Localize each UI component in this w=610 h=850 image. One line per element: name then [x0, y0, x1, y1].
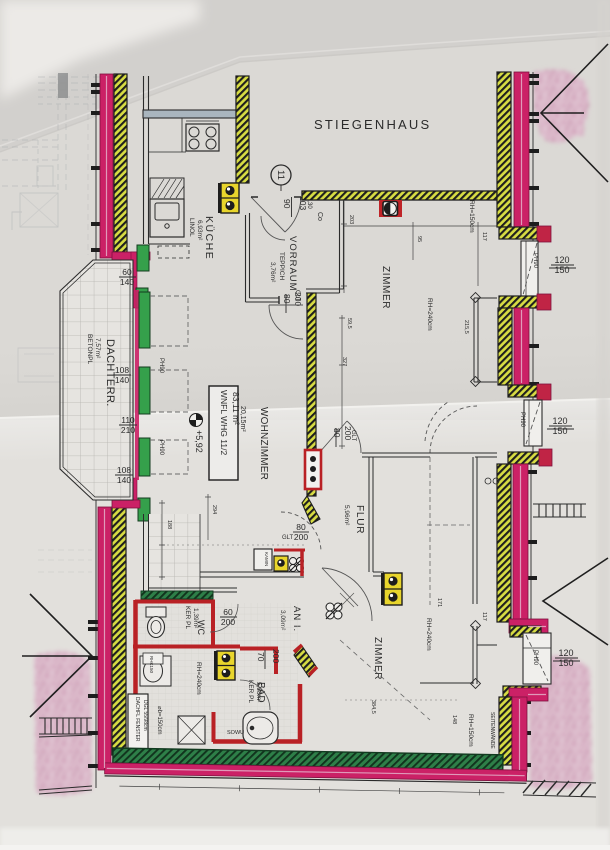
svg-text:60: 60	[122, 267, 132, 277]
svg-text:PH90: PH90	[158, 358, 164, 374]
svg-text:171: 171	[436, 598, 442, 607]
svg-text:117: 117	[481, 232, 487, 241]
svg-text:210: 210	[121, 425, 135, 435]
svg-text:3,76m²: 3,76m²	[269, 262, 276, 283]
svg-text:117: 117	[481, 612, 487, 621]
svg-text:ZIMMER: ZIMMER	[380, 266, 391, 309]
svg-text:BETONPL: BETONPL	[86, 334, 93, 365]
svg-text:STIEGENHAUS: STIEGENHAUS	[314, 117, 431, 132]
svg-text:KÜCHE: KÜCHE	[203, 216, 215, 260]
svg-text:ZIMMER: ZIMMER	[372, 637, 383, 680]
svg-text:RH=150cm: RH=150cm	[468, 200, 475, 233]
svg-text:20,15m²: 20,15m²	[239, 406, 246, 432]
svg-text:200: 200	[293, 292, 303, 306]
svg-text:WC: WC	[196, 620, 206, 635]
svg-text:140: 140	[120, 277, 134, 287]
svg-text:PH90: PH90	[532, 650, 538, 666]
svg-text:PH90: PH90	[519, 412, 525, 428]
svg-text:+5,92: +5,92	[194, 430, 204, 453]
svg-text:5,96m²: 5,96m²	[343, 505, 350, 526]
svg-text:GLT: GLT	[282, 535, 294, 541]
svg-text:WOHNZIMMER: WOHNZIMMER	[258, 407, 269, 480]
svg-text:WNFL WHG 11/2: WNFL WHG 11/2	[219, 390, 229, 455]
svg-text:SOWU: SOWU	[227, 730, 244, 736]
svg-text:148: 148	[451, 715, 457, 724]
svg-text:11: 11	[275, 170, 286, 180]
svg-text:140: 140	[115, 375, 129, 385]
svg-text:FLUR: FLUR	[354, 505, 365, 534]
svg-text:6,93m²: 6,93m²	[196, 220, 203, 241]
svg-text:KAMIN: KAMIN	[264, 552, 269, 566]
svg-text:RH=240cm: RH=240cm	[426, 298, 433, 331]
svg-text:59,5: 59,5	[346, 318, 352, 329]
svg-text:LINOL: LINOL	[188, 218, 195, 237]
svg-text:RH=240cm: RH=240cm	[425, 618, 432, 651]
svg-text:RH=150cm: RH=150cm	[467, 714, 474, 747]
svg-text:80: 80	[296, 522, 306, 532]
svg-text:90: 90	[282, 199, 292, 209]
svg-text:7,57m²: 7,57m²	[94, 338, 101, 359]
svg-text:200: 200	[294, 532, 308, 542]
svg-text:80: 80	[282, 294, 292, 304]
svg-text:60: 60	[223, 607, 233, 617]
svg-text:110: 110	[121, 415, 135, 425]
svg-text:DACHTERR.: DACHTERR.	[104, 339, 116, 407]
svg-text:VORRAUM: VORRAUM	[287, 236, 298, 292]
svg-text:203: 203	[348, 215, 354, 224]
svg-text:120: 120	[558, 648, 573, 658]
svg-text:150: 150	[554, 265, 569, 275]
svg-text:140: 140	[117, 475, 131, 485]
svg-text:150: 150	[558, 658, 573, 668]
svg-text:215,5: 215,5	[463, 320, 469, 334]
svg-text:Co: Co	[316, 212, 323, 221]
svg-text:5,98m²: 5,98m²	[255, 682, 262, 703]
svg-text:DGL 55/98cm: DGL 55/98cm	[142, 700, 148, 731]
svg-text:PH90: PH90	[158, 440, 164, 456]
svg-text:70: 70	[256, 652, 266, 662]
svg-text:150: 150	[552, 426, 567, 436]
svg-text:⌀b=150cm: ⌀b=150cm	[156, 706, 162, 734]
svg-text:188: 188	[166, 520, 172, 529]
svg-text:120: 120	[552, 416, 567, 426]
svg-text:200: 200	[271, 649, 281, 663]
svg-text:RH=240cm: RH=240cm	[195, 662, 202, 695]
svg-text:108: 108	[117, 465, 131, 475]
svg-text:GLT: GLT	[350, 430, 356, 442]
svg-text:95: 95	[416, 236, 422, 242]
svg-text:KER PL: KER PL	[247, 680, 254, 704]
svg-text:294: 294	[211, 505, 217, 514]
svg-text:SEITENWÄNDE: SEITENWÄNDE	[489, 712, 496, 749]
svg-text:384,5: 384,5	[370, 700, 376, 714]
svg-text:327: 327	[341, 357, 347, 366]
svg-text:120: 120	[554, 255, 569, 265]
svg-text:PH90: PH90	[532, 253, 538, 269]
svg-text:RHK150: RHK150	[149, 656, 154, 674]
svg-text:80: 80	[332, 428, 342, 438]
svg-text:TEPPICH: TEPPICH	[278, 252, 285, 280]
svg-text:KER PL: KER PL	[184, 606, 191, 630]
svg-text:108: 108	[115, 365, 129, 375]
svg-text:DACHFL FENSTER: DACHFL FENSTER	[134, 697, 140, 742]
